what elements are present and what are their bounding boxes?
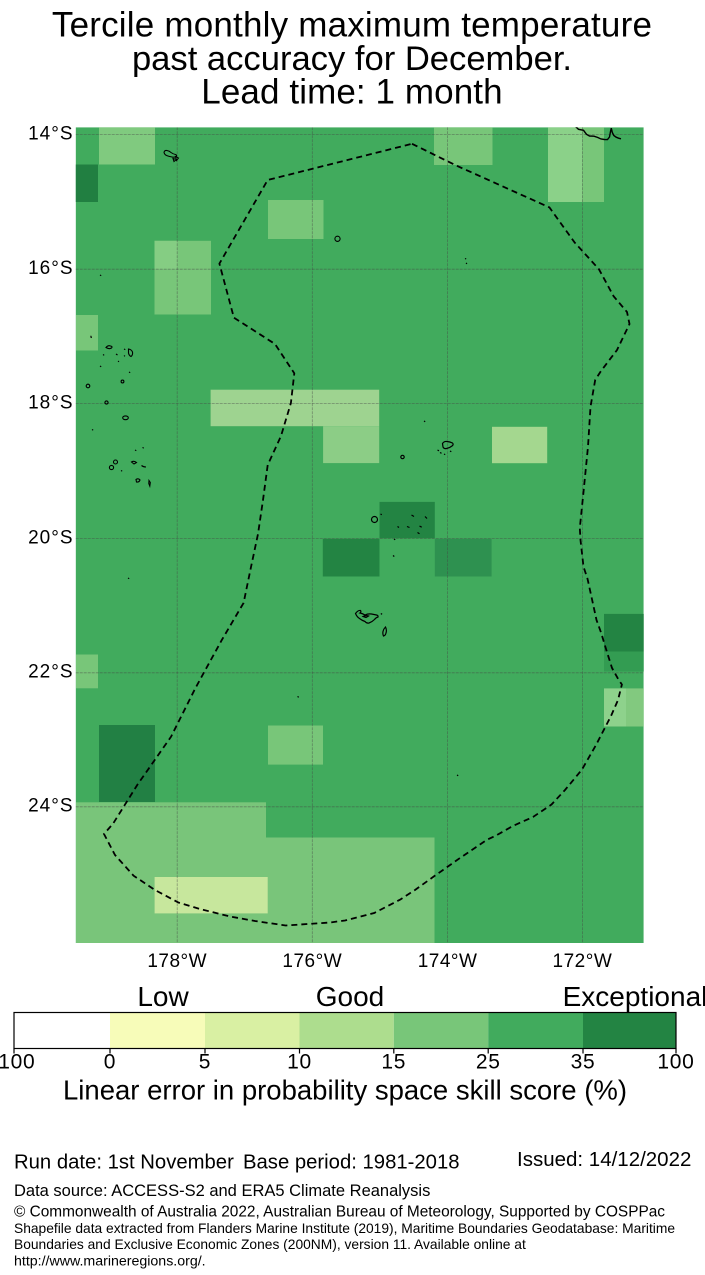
svg-text:Data source: ACCESS-S2 and ERA: Data source: ACCESS-S2 and ERA5 Climate …: [14, 1182, 430, 1200]
svg-text:5: 5: [199, 1051, 211, 1074]
svg-text:22°S: 22°S: [28, 662, 73, 683]
svg-text:172°W: 172°W: [553, 951, 613, 972]
svg-text:Good: Good: [316, 981, 385, 1012]
svg-text:176°W: 176°W: [282, 951, 342, 972]
svg-text:Shapefile data extracted from: Shapefile data extracted from Flanders M…: [14, 1221, 675, 1236]
svg-text:15: 15: [381, 1051, 406, 1074]
svg-text:Tercile monthly maximum temper: Tercile monthly maximum temperature: [52, 6, 652, 45]
svg-text:Run date: 1st November: Run date: 1st November: [14, 1152, 234, 1174]
svg-text:Exceptional: Exceptional: [563, 981, 705, 1012]
svg-text:174°W: 174°W: [418, 951, 478, 972]
svg-text:Low: Low: [137, 981, 189, 1012]
svg-text:14°S: 14°S: [28, 123, 73, 144]
svg-text:35: 35: [571, 1051, 596, 1074]
svg-text:Base period: 1981-2018: Base period: 1981-2018: [243, 1152, 460, 1174]
svg-text:16°S: 16°S: [28, 258, 73, 279]
svg-text:18°S: 18°S: [28, 392, 73, 413]
svg-text:Linear error in probability sp: Linear error in probability space skill …: [63, 1075, 627, 1106]
svg-text:-100: -100: [0, 1051, 35, 1074]
svg-text:25: 25: [476, 1051, 501, 1074]
svg-text:Issued: 14/12/2022: Issued: 14/12/2022: [517, 1148, 691, 1171]
svg-text:178°W: 178°W: [147, 951, 207, 972]
svg-text:0: 0: [104, 1051, 116, 1074]
svg-text:© Commonwealth of Australia 20: © Commonwealth of Australia 2022, Austra…: [14, 1204, 665, 1221]
svg-text:Lead time: 1 month: Lead time: 1 month: [201, 73, 502, 112]
svg-text:24°S: 24°S: [28, 796, 73, 817]
svg-text:100: 100: [657, 1051, 694, 1074]
svg-text:20°S: 20°S: [28, 527, 73, 548]
svg-text:10: 10: [287, 1051, 312, 1074]
svg-text:http://www.marineregions.org/.: http://www.marineregions.org/.: [14, 1254, 206, 1270]
svg-text:Boundaries and Exclusive Econo: Boundaries and Exclusive Economic Zones …: [14, 1237, 526, 1252]
